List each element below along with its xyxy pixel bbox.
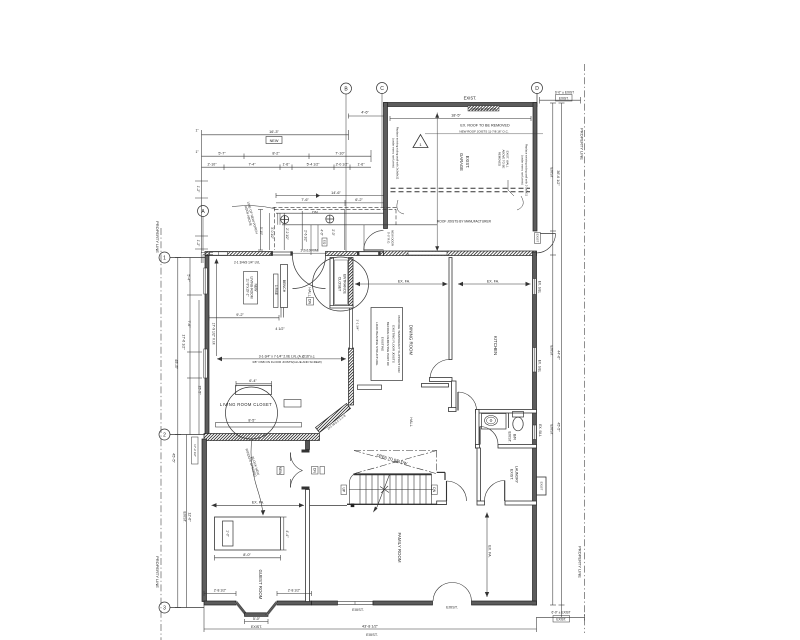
svg-text:LOAD BEARING STRUCTURE.: LOAD BEARING STRUCTURE.: [375, 322, 379, 366]
svg-text:4'-4": 4'-4": [285, 530, 289, 538]
svg-text:EXIST.: EXIST.: [550, 425, 554, 436]
svg-text:17'-9 1/2" V.I.F.: 17'-9 1/2" V.I.F.: [212, 323, 216, 346]
svg-text:EX. FA.: EX. FA.: [252, 501, 264, 505]
svg-text:2: 2: [163, 433, 166, 439]
svg-text:EX. SILL: EX. SILL: [538, 424, 542, 437]
svg-text:16'-3": 16'-3": [269, 130, 279, 134]
svg-text:PROPERTY LINE: PROPERTY LINE: [578, 546, 583, 578]
svg-text:1 RISE: 1 RISE: [274, 285, 278, 295]
svg-text:7'-6": 7'-6": [301, 198, 309, 202]
svg-text:4'-0": 4'-0": [320, 229, 324, 235]
svg-text:FAMILY ROOM: FAMILY ROOM: [397, 532, 402, 562]
svg-text:UP: UP: [342, 487, 346, 492]
svg-text:18'-5": 18'-5": [451, 114, 461, 118]
svg-text:EXIST.: EXIST.: [251, 625, 262, 629]
svg-text:5'-7": 5'-7": [218, 152, 226, 156]
svg-text:2'-2 1/2": 2'-2 1/2": [285, 228, 289, 240]
svg-text:45'-5": 45'-5": [172, 453, 176, 463]
svg-text:EXIST.: EXIST.: [508, 432, 512, 443]
svg-text:45'-5": 45'-5": [174, 359, 178, 369]
svg-text:(under every roof joists): (under every roof joists): [392, 138, 396, 167]
svg-text:GARAGE: GARAGE: [459, 153, 464, 171]
svg-text:CLOSET: CLOSET: [338, 277, 342, 292]
svg-text:45'-5": 45'-5": [556, 422, 560, 432]
svg-text:EXIST.: EXIST.: [550, 346, 554, 357]
svg-text:NEW ROOF JOISTS 11-7/8 16" O.C: NEW ROOF JOISTS 11-7/8 16" O.C.: [459, 130, 508, 134]
svg-text:EXIST.: EXIST.: [510, 469, 514, 480]
svg-text:5'-0": 5'-0": [253, 617, 261, 621]
svg-text:DINING ROOM: DINING ROOM: [408, 325, 413, 356]
svg-text:BEFORE REMOVING PART OF: BEFORE REMOVING PART OF: [386, 322, 390, 366]
svg-text:ROOF JOISTS BY MANUFACTURER: ROOF JOISTS BY MANUFACTURER: [437, 220, 491, 224]
svg-text:(under every roof joists): (under every roof joists): [521, 155, 525, 184]
svg-text:1'-2": 1'-2": [196, 240, 200, 248]
svg-text:B/R: B/R: [513, 434, 517, 440]
svg-text:EX. FA.: EX. FA.: [487, 279, 499, 283]
svg-text:NEW: NEW: [270, 139, 279, 143]
svg-text:2'-8 1/2": 2'-8 1/2": [214, 589, 227, 593]
svg-text:3'-0 1/2": 3'-0 1/2": [270, 227, 274, 239]
svg-text:43'-8 1/2": 43'-8 1/2": [362, 624, 379, 628]
svg-text:EX. SILL: EX. SILL: [538, 360, 542, 373]
svg-text:36'-6 1/2": 36'-6 1/2": [556, 170, 560, 186]
svg-text:44'-6": 44'-6": [556, 350, 560, 360]
svg-text:GUEST ROOM: GUEST ROOM: [258, 570, 263, 600]
svg-text:2'-0": 2'-0": [331, 229, 335, 235]
svg-text:PROPERTY LINE: PROPERTY LINE: [580, 128, 585, 160]
svg-text:PROPERTY LINE: PROPERTY LINE: [155, 556, 160, 588]
svg-text:NEW DOOR: NEW DOOR: [391, 230, 395, 246]
svg-text:EXIST.: EXIST.: [556, 618, 566, 622]
svg-text:2'-8 1/2": 2'-8 1/2": [288, 589, 301, 593]
svg-text:DN: DN: [313, 468, 317, 473]
svg-text:EXIST.: EXIST.: [366, 633, 378, 637]
svg-text:EX. SILL: EX. SILL: [538, 281, 542, 294]
svg-text:PROVIDE TEMPORARY SUPPORT FOR: PROVIDE TEMPORARY SUPPORT FOR: [397, 315, 401, 373]
svg-text:1: 1: [163, 256, 166, 262]
svg-text:6'-0" ± EXIST: 6'-0" ± EXIST: [551, 611, 570, 615]
svg-text:5'-4": 5'-4": [187, 274, 191, 282]
svg-text:ENTRANCE: ENTRANCE: [343, 274, 347, 294]
svg-text:14'-6": 14'-6": [331, 191, 341, 195]
svg-text:2'-6 1/2": 2'-6 1/2": [304, 230, 308, 242]
svg-text:7'-6": 7'-6": [187, 320, 191, 328]
svg-text:5'-4 1/2": 5'-4 1/2": [307, 163, 321, 167]
svg-text:EXIST.: EXIST.: [183, 512, 187, 523]
svg-text:1'-6": 1'-6": [358, 163, 366, 167]
svg-text:HALL: HALL: [308, 287, 312, 297]
svg-text:9'-2": 9'-2": [236, 313, 244, 317]
svg-text:3-1-3/4" x 7-1/4" 2.0E LVL (A.: 3-1-3/4" x 7-1/4" 2.0E LVL (A.@16"o.c.: [259, 354, 316, 358]
svg-text:11'-9"x19'-1": 11'-9"x19'-1": [246, 278, 250, 297]
svg-text:1'-0": 1'-0": [226, 530, 230, 538]
svg-text:1'-6": 1'-6": [283, 163, 291, 167]
svg-text:LAUNDRY: LAUNDRY: [515, 466, 519, 484]
svg-text:15'-5": 15'-5": [198, 385, 202, 395]
svg-text:8'-5": 8'-5": [248, 419, 256, 423]
svg-text:EXIST: EXIST: [540, 482, 544, 491]
svg-text:4 1/2": 4 1/2": [275, 327, 285, 331]
svg-text:EQ: EQ: [323, 240, 327, 245]
svg-text:6'-4": 6'-4": [249, 379, 257, 383]
svg-text:5'-10": 5'-10": [259, 227, 263, 235]
svg-text:12'-6": 12'-6": [188, 512, 192, 522]
svg-text:3'-1 3/4": 3'-1 3/4": [356, 320, 360, 331]
svg-text:NEW: NEW: [278, 467, 282, 474]
svg-text:DN: DN: [432, 487, 436, 492]
svg-text:2'-0 1/2": 2'-0 1/2": [336, 163, 350, 167]
svg-text:6'-0" ± EXIST: 6'-0" ± EXIST: [555, 91, 574, 95]
svg-text:5'-0" R.O.: 5'-0" R.O.: [387, 232, 391, 244]
svg-text:OVERHD DR HDR: OVERHD DR HDR: [471, 107, 497, 111]
svg-text:DN: DN: [308, 299, 312, 305]
svg-text:1'-2": 1'-2": [196, 186, 200, 194]
svg-text:C: C: [380, 86, 384, 92]
svg-text:EXIST: EXIST: [536, 234, 540, 243]
svg-text:3/8" OSB ON FLOOR JOISTS(GLUE: 3/8" OSB ON FLOOR JOISTS(GLUE AND SCREW): [252, 360, 321, 364]
svg-text:EXIST.: EXIST.: [464, 96, 477, 101]
svg-text:EXIST.: EXIST.: [352, 608, 364, 612]
svg-text:1-2x10 RIM: 1-2x10 RIM: [300, 249, 318, 253]
svg-text:EXISTING FLOOR JOISTS: EXISTING FLOOR JOISTS: [392, 325, 396, 363]
svg-text:EXIST.: EXIST.: [550, 168, 554, 179]
svg-text:EXIST.: EXIST.: [559, 97, 569, 101]
svg-text:HALL: HALL: [409, 417, 413, 427]
svg-text:2'-10": 2'-10": [208, 163, 218, 167]
svg-text:3: 3: [163, 606, 166, 612]
svg-text:EX. FA.: EX. FA.: [398, 279, 410, 283]
svg-text:KITCHEN: KITCHEN: [493, 336, 498, 355]
svg-text:8'-2": 8'-2": [272, 152, 280, 156]
svg-text:EX. ROOF TO BE REMOVED: EX. ROOF TO BE REMOVED: [460, 124, 510, 128]
svg-text:17'-6 1/2": 17'-6 1/2": [182, 334, 186, 350]
svg-text:6'-2": 6'-2": [355, 198, 363, 202]
svg-text:BENCH: BENCH: [282, 280, 286, 293]
svg-text:EX. FA.: EX. FA.: [488, 545, 492, 557]
svg-text:4'-6": 4'-6": [361, 111, 369, 115]
svg-text:EXIST.: EXIST.: [465, 156, 470, 169]
svg-text:17'-2 1/2": 17'-2 1/2": [193, 444, 197, 457]
svg-text:2-1 3/4x9 1/4" LVL: 2-1 3/4x9 1/4" LVL: [234, 261, 260, 265]
svg-text:7'-4": 7'-4": [249, 163, 257, 167]
svg-text:DN: DN: [312, 211, 318, 215]
svg-text:PROPERTY LINE: PROPERTY LINE: [155, 221, 160, 253]
svg-text:8'-0": 8'-0": [243, 553, 251, 557]
svg-text:D: D: [535, 86, 539, 92]
svg-text:REMOVED: REMOVED: [498, 152, 502, 166]
svg-text:EXIST.: EXIST.: [446, 606, 458, 610]
svg-text:EXISTING: EXISTING: [381, 337, 385, 352]
svg-text:7'-10": 7'-10": [335, 152, 345, 156]
